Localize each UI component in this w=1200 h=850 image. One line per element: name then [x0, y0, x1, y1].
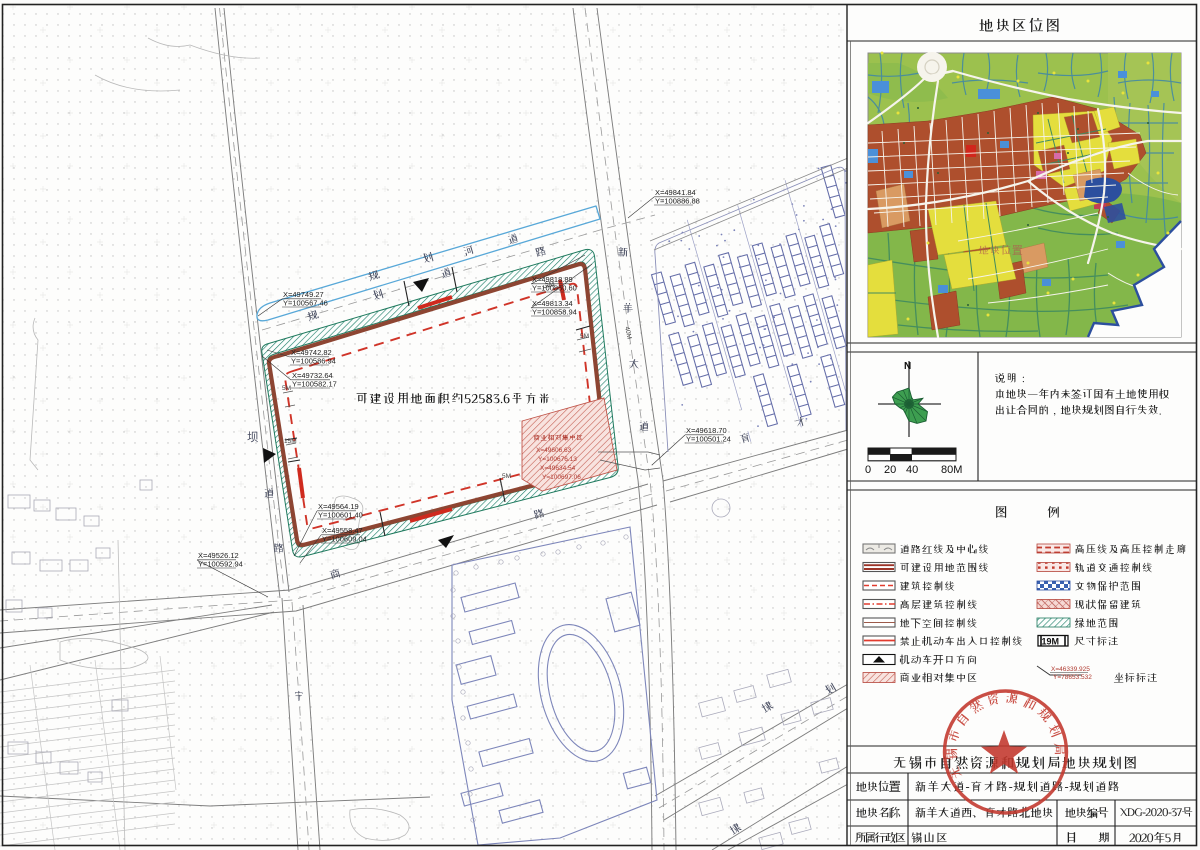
- svg-text:可建设用地范围线: 可建设用地范围线: [899, 563, 989, 574]
- svg-text:坐标标注: 坐标标注: [1113, 673, 1158, 684]
- svg-text:80M: 80M: [941, 464, 962, 476]
- svg-text:道: 道: [638, 421, 650, 432]
- svg-text:20: 20: [884, 464, 896, 476]
- svg-text:说明：: 说明：: [994, 372, 1029, 384]
- svg-text:Y=78653.532: Y=78653.532: [1053, 674, 1092, 681]
- svg-text:X=49606.63: X=49606.63: [536, 447, 572, 454]
- svg-text:地块编号: 地块编号: [1064, 806, 1109, 819]
- svg-text:绿地范围: 绿地范围: [1074, 618, 1119, 629]
- svg-text:高压线及高压控制走廊: 高压线及高压控制走廊: [1074, 544, 1187, 555]
- svg-text:15M: 15M: [284, 438, 297, 445]
- svg-text:可建设用地面积约52583.6平方米: 可建设用地面积约52583.6平方米: [355, 391, 551, 405]
- svg-text:现状保留建筑: 现状保留建筑: [1074, 599, 1142, 611]
- svg-text:0: 0: [865, 464, 871, 476]
- svg-text:所属行政区: 所属行政区: [854, 831, 907, 844]
- svg-text:Y=100567.46: Y=100567.46: [283, 299, 328, 308]
- svg-text:文物保护范围: 文物保护范围: [1074, 580, 1142, 592]
- svg-text:N: N: [904, 361, 911, 372]
- svg-text:地块位置: 地块位置: [855, 780, 901, 793]
- svg-text:高层建筑控制线: 高层建筑控制线: [899, 600, 978, 611]
- svg-text:新: 新: [617, 246, 629, 258]
- svg-text:期: 期: [1097, 831, 1110, 844]
- svg-text:Y=100858.94: Y=100858.94: [532, 308, 577, 317]
- svg-text:地块名称: 地块名称: [855, 806, 901, 820]
- svg-text:大: 大: [628, 358, 640, 370]
- svg-text:机动车开口方向: 机动车开口方向: [899, 655, 978, 666]
- svg-text:5M: 5M: [580, 333, 589, 340]
- svg-text:X=46339.925: X=46339.925: [1051, 666, 1090, 673]
- svg-text:地块区位图: 地块区位图: [978, 17, 1061, 33]
- svg-text:Y=100586.94: Y=100586.94: [291, 357, 336, 366]
- svg-text:Y=100697.06: Y=100697.06: [542, 474, 581, 481]
- svg-text:日: 日: [1065, 831, 1078, 844]
- svg-text:商业相对集中区: 商业相对集中区: [899, 672, 978, 684]
- svg-text:建筑控制线: 建筑控制线: [899, 581, 955, 592]
- svg-text:本地块一年内未签订国有土地使用权: 本地块一年内未签订国有土地使用权: [994, 388, 1170, 400]
- svg-text:坝: 坝: [247, 430, 259, 443]
- svg-text:Y=100609.04: Y=100609.04: [322, 535, 367, 544]
- svg-text:2020年5月: 2020年5月: [1129, 831, 1183, 844]
- svg-text:道路红线及中心线: 道路红线及中心线: [899, 543, 989, 555]
- svg-text:40: 40: [906, 464, 918, 476]
- svg-text:地块位置: 地块位置: [978, 244, 1023, 256]
- svg-text:宁: 宁: [293, 690, 305, 702]
- svg-text:Y=100501.24: Y=100501.24: [686, 435, 731, 444]
- svg-text:5M: 5M: [282, 385, 291, 392]
- svg-text:尺寸标注: 尺寸标注: [1074, 636, 1119, 647]
- svg-text:羊: 羊: [622, 303, 634, 314]
- svg-text:禁止机动车出入口控制线: 禁止机动车出入口控制线: [899, 636, 1023, 647]
- svg-text:商业相对集中区: 商业相对集中区: [533, 434, 583, 441]
- svg-text:Y=100886.88: Y=100886.88: [655, 197, 700, 206]
- svg-text:图: 图: [994, 505, 1008, 519]
- svg-text:5M: 5M: [502, 473, 511, 480]
- svg-text:X=49634.54: X=49634.54: [540, 465, 576, 472]
- svg-text:锡山区: 锡山区: [910, 831, 948, 844]
- svg-text:出让合同的，地块规划图自行失效。: 出让合同的，地块规划图自行失效。: [994, 404, 1170, 416]
- svg-text:轨道交通控制线: 轨道交通控制线: [1074, 563, 1153, 574]
- svg-text:道: 道: [263, 488, 275, 499]
- svg-text:Y=100582.17: Y=100582.17: [292, 380, 337, 389]
- svg-text:例: 例: [1046, 505, 1060, 519]
- svg-text:XDG-2020-37号: XDG-2020-37号: [1119, 807, 1193, 818]
- svg-text:地下空间控制线: 地下空间控制线: [899, 618, 978, 629]
- svg-text:新羊大道-育才路-规划道路-规划道路: 新羊大道-育才路-规划道路-规划道路: [914, 780, 1120, 793]
- svg-text:Y=100676.13: Y=100676.13: [538, 456, 577, 463]
- svg-text:19M: 19M: [1042, 637, 1060, 647]
- svg-text:Y=100601.40: Y=100601.40: [318, 511, 363, 520]
- svg-text:路: 路: [273, 543, 285, 554]
